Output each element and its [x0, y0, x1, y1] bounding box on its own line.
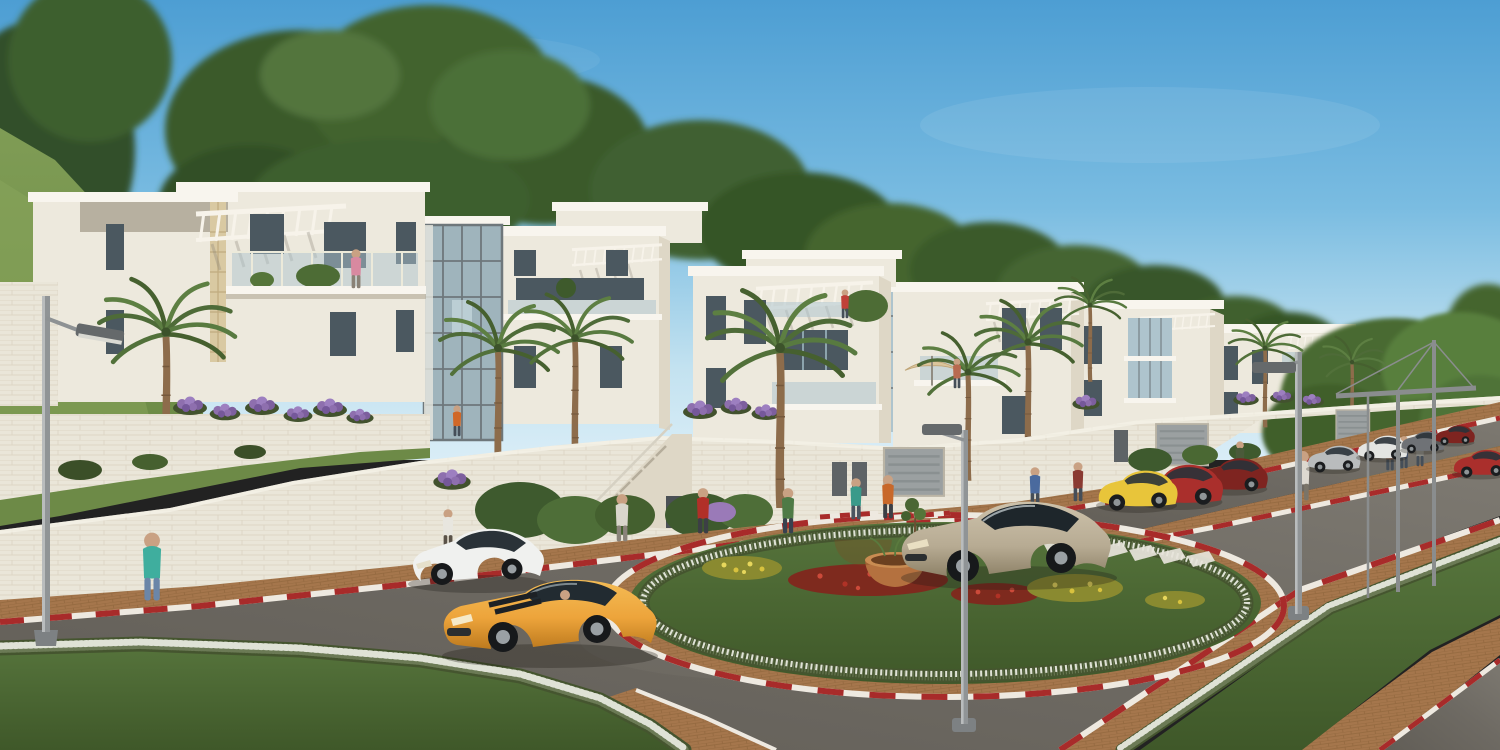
window — [606, 250, 628, 276]
building-3 — [688, 250, 902, 443]
shrub — [132, 454, 168, 470]
flower-bed-yellow — [702, 556, 782, 580]
entrance-door — [832, 462, 847, 496]
driver — [560, 590, 570, 600]
shrub — [234, 445, 266, 459]
balcony-glass — [772, 382, 876, 406]
window — [514, 250, 536, 276]
roof-recess — [80, 202, 228, 232]
balcony-plants — [296, 264, 340, 288]
window — [106, 224, 124, 270]
window — [1002, 396, 1026, 434]
cloud-wisp — [920, 87, 1380, 163]
terrace-plant — [844, 290, 888, 322]
shrub — [58, 460, 102, 480]
scene-svg: Sunny architectural rendering of a hills… — [0, 0, 1500, 750]
rendering-canvas: Sunny architectural rendering of a hills… — [0, 0, 1500, 750]
window — [1222, 346, 1238, 380]
terrace-doors — [516, 278, 644, 300]
terrace-door — [250, 214, 284, 254]
window — [330, 312, 356, 356]
flower-bed-yellow-3 — [1145, 591, 1205, 609]
building-1 — [28, 182, 430, 402]
window — [600, 346, 622, 388]
entrance-door — [1114, 430, 1128, 462]
window — [706, 368, 726, 408]
topiary — [556, 278, 576, 298]
window — [396, 310, 414, 352]
